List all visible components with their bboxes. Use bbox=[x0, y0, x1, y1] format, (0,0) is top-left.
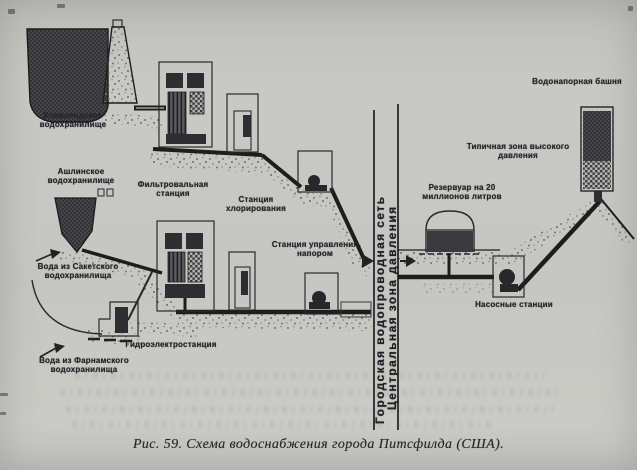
high-pressure-zone-label: Типичная зона высокого давления bbox=[452, 142, 584, 160]
filter-station-label: Фильтровальная станция bbox=[129, 180, 217, 198]
filter-station-upper-building bbox=[159, 62, 212, 147]
pressure-control-label: Станция управления напором bbox=[260, 240, 370, 258]
scan-speck bbox=[57, 4, 65, 8]
central-zone-vertical-label: Центральная зона давления bbox=[387, 206, 398, 411]
scan-bleed-line bbox=[72, 421, 492, 428]
scan-speck bbox=[628, 6, 633, 11]
filter-station-lower-building bbox=[157, 221, 214, 311]
storage-reservoir-dome bbox=[419, 211, 481, 254]
scan-speck bbox=[0, 412, 6, 415]
scan-speck bbox=[0, 393, 8, 396]
ashley-reservoir bbox=[55, 189, 113, 252]
scanned-book-page: Кливлендское водохранилище Ашлинское вод… bbox=[0, 0, 637, 470]
water-supply-diagram bbox=[0, 0, 637, 470]
scan-bleed-line bbox=[60, 389, 560, 396]
chlorination-station-label: Станция хлорирования bbox=[216, 195, 296, 213]
chlorination-upper-building bbox=[227, 94, 258, 152]
pressure-box-upper bbox=[298, 151, 332, 192]
scan-bleed-line bbox=[75, 372, 545, 379]
sackett-water-label: Вода из Сакетского водохранилища bbox=[22, 262, 134, 280]
cleveland-reservoir bbox=[27, 29, 108, 122]
pump-stations-label: Насосные станции bbox=[462, 300, 566, 309]
figure-caption: Рис. 59. Схема водоснабжения города Питс… bbox=[0, 437, 637, 453]
hydro-station-label: Гидроэлектростанция bbox=[115, 340, 227, 349]
ashley-reservoir-label: Ашлинское водохранилище bbox=[30, 167, 132, 185]
cleveland-reservoir-label: Кливлендское водохранилище bbox=[20, 111, 126, 129]
scan-bleed-line bbox=[66, 406, 554, 413]
water-tower bbox=[581, 107, 613, 202]
supply-curve bbox=[32, 280, 102, 334]
scan-speck bbox=[8, 9, 15, 14]
water-tower-label: Водонапорная башня bbox=[531, 77, 623, 86]
sackett-flow-arrow bbox=[36, 254, 52, 261]
chlorination-lower-building bbox=[229, 252, 255, 310]
reservoir-20m-label: Резервуар на 20 миллионов литров bbox=[406, 183, 518, 201]
